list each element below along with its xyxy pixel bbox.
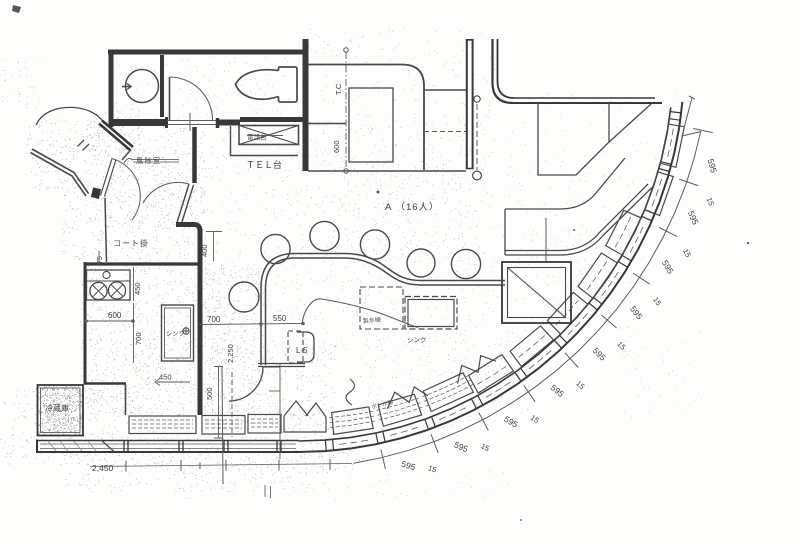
svg-text:シンク: シンク	[407, 336, 427, 344]
svg-text:シンク: シンク	[166, 331, 185, 338]
svg-text:コート掛: コート掛	[113, 238, 149, 248]
svg-text:L-5: L-5	[296, 346, 308, 355]
svg-text:500: 500	[205, 387, 214, 400]
svg-text:2,250: 2,250	[226, 344, 235, 363]
svg-text:風除室: 風除室	[136, 156, 162, 165]
svg-text:冷蔵庫: 冷蔵庫	[45, 403, 69, 413]
svg-text:75: 75	[97, 256, 104, 264]
svg-text:A （16人）: A （16人）	[385, 201, 440, 213]
svg-text:電話台: 電話台	[247, 133, 267, 142]
svg-text:600: 600	[332, 140, 341, 153]
svg-text:450: 450	[133, 282, 142, 295]
svg-text:2,450: 2,450	[92, 463, 114, 473]
svg-text:600: 600	[108, 311, 122, 320]
svg-text:450: 450	[159, 373, 172, 382]
svg-text:ＴＥＬ台: ＴＥＬ台	[246, 159, 282, 170]
svg-text:400: 400	[200, 244, 209, 257]
svg-text:700: 700	[207, 315, 221, 324]
svg-text:550: 550	[273, 314, 287, 323]
svg-text:700: 700	[134, 332, 143, 345]
svg-text:T.C: T.C	[334, 83, 343, 95]
